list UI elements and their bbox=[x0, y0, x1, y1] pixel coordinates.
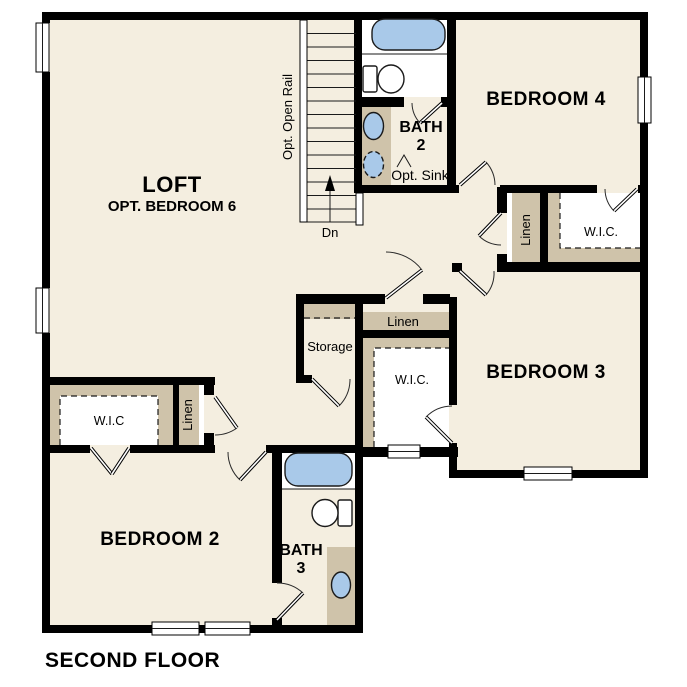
bath3-sink-icon bbox=[332, 572, 351, 598]
bedroom2-label: BEDROOM 2 bbox=[100, 529, 220, 550]
storage-shelf bbox=[304, 304, 355, 319]
bath2-number: 2 bbox=[417, 137, 426, 154]
floor-plan-drawing: LOFT OPT. BEDROOM 6 BEDROOM 4 BEDROOM 3 … bbox=[0, 0, 687, 687]
bath2-optional-sink-icon bbox=[364, 152, 384, 178]
linen-right-floor bbox=[507, 193, 512, 262]
window-bedroom2-a bbox=[152, 622, 199, 635]
window-bedroom4 bbox=[638, 77, 651, 123]
bedroom3-label: BEDROOM 3 bbox=[486, 362, 606, 383]
bath2-sink-icon bbox=[364, 113, 384, 140]
linen-left-floor bbox=[199, 385, 204, 445]
bath3-toilet-icon bbox=[312, 500, 352, 527]
wic-mid-floor bbox=[374, 348, 449, 447]
stairs-rail-left bbox=[300, 20, 307, 222]
bath2-label: BATH bbox=[399, 119, 442, 136]
linen-mid-label: Linen bbox=[387, 314, 419, 329]
window-loft-left bbox=[36, 23, 49, 72]
bath3-tub-icon bbox=[285, 453, 352, 486]
bath2-toilet-icon bbox=[363, 65, 404, 93]
wic-left-label: W.I.C bbox=[94, 414, 125, 428]
stairs-down-label: Dn bbox=[322, 225, 339, 240]
linen-right-label: Linen bbox=[518, 214, 533, 246]
wic-right-floor bbox=[560, 193, 640, 248]
plan-title: SECOND FLOOR bbox=[45, 649, 220, 672]
storage-label: Storage bbox=[307, 339, 353, 354]
wic-mid-label: W.I.C. bbox=[395, 373, 429, 387]
linen-left-label: Linen bbox=[180, 399, 195, 431]
bath3-number: 3 bbox=[297, 560, 306, 577]
wic-right-label: W.I.C. bbox=[584, 225, 618, 239]
opt-open-rail-label: Opt. Open Rail bbox=[280, 74, 295, 160]
bath2-opt-sink-note: Opt. Sink bbox=[391, 167, 450, 183]
loft-sublabel: OPT. BEDROOM 6 bbox=[108, 198, 236, 215]
bedroom4-label: BEDROOM 4 bbox=[486, 89, 606, 110]
window-bedroom2-b bbox=[205, 622, 250, 635]
loft-label: LOFT bbox=[142, 172, 201, 197]
window-bedroom3 bbox=[524, 467, 572, 480]
floor-plan-page: LOFT OPT. BEDROOM 6 BEDROOM 4 BEDROOM 3 … bbox=[0, 0, 687, 687]
stairs-rail-right bbox=[356, 193, 363, 225]
bath2-tub-icon bbox=[372, 19, 445, 50]
window-wic-mid bbox=[388, 445, 420, 458]
bath3-label: BATH bbox=[279, 542, 322, 559]
window-left-mid bbox=[36, 288, 49, 333]
